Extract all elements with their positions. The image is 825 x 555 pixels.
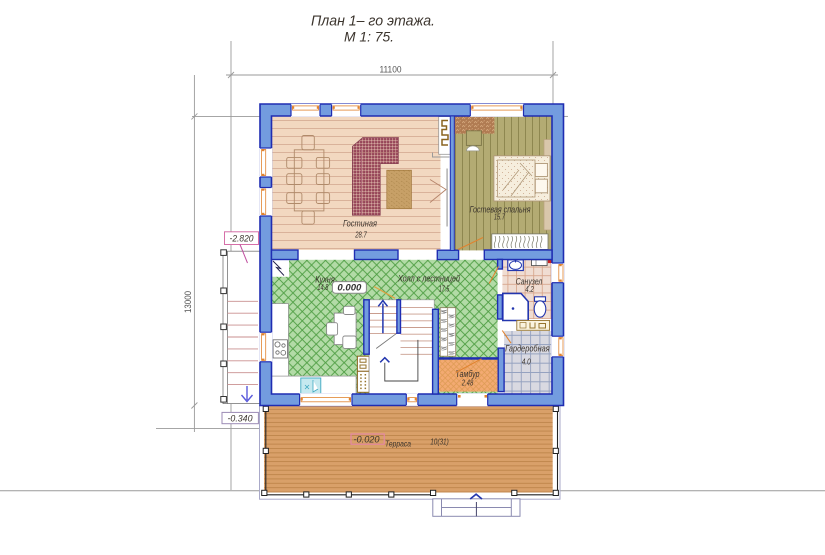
svg-text:28.7: 28.7	[355, 230, 368, 240]
svg-text:10(31): 10(31)	[430, 438, 449, 447]
svg-text:4.2: 4.2	[525, 284, 534, 294]
svg-text:Гостиная: Гостиная	[343, 219, 377, 230]
svg-text:11100: 11100	[380, 65, 402, 75]
svg-text:План 1– го этажа.: План 1– го этажа.	[311, 14, 435, 30]
svg-text:0.000: 0.000	[337, 282, 362, 293]
svg-text:4.0: 4.0	[522, 356, 531, 366]
svg-text:Гардеробная: Гардеробная	[505, 343, 550, 353]
svg-text:14.8: 14.8	[317, 282, 328, 292]
svg-text:Холл с лестницей: Холл с лестницей	[397, 274, 460, 284]
svg-text:-2.820: -2.820	[230, 234, 254, 244]
svg-text:2.48: 2.48	[461, 378, 473, 388]
svg-text:-0.020: -0.020	[354, 434, 380, 444]
svg-text:Терраса: Терраса	[385, 439, 411, 449]
svg-text:17.5: 17.5	[439, 283, 450, 293]
svg-text:-0.340: -0.340	[228, 413, 253, 423]
svg-text:М 1: 75.: М 1: 75.	[344, 30, 394, 45]
svg-text:13000: 13000	[183, 291, 193, 313]
svg-text:15.7: 15.7	[494, 212, 506, 222]
